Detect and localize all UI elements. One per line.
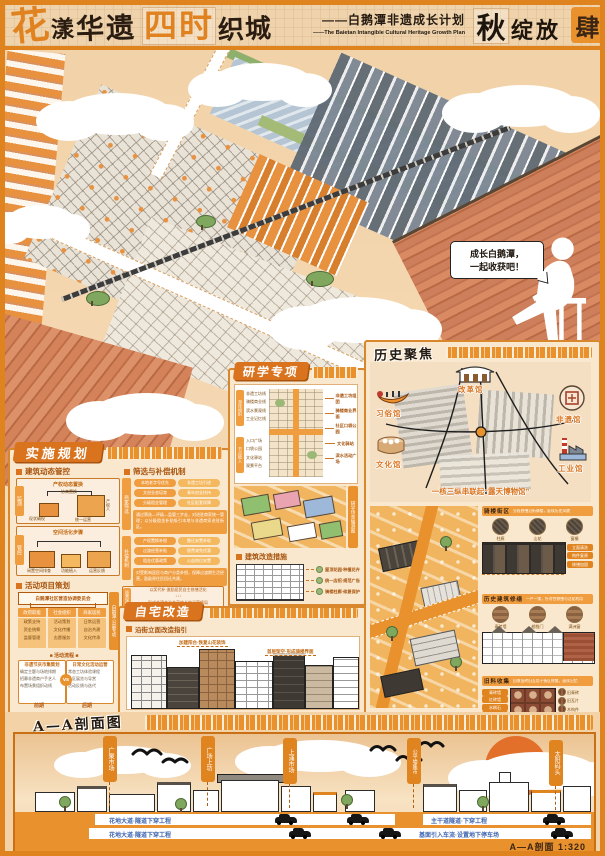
historic-building-subpanel: 历史建筑修缮 一户一策，针对性修缮与活化利用 青砖墙 趟栊门 满洲窗 (482, 594, 593, 674)
axon-block (273, 490, 301, 510)
axon-block (287, 522, 317, 543)
filter-groupB-note: 对受影响居民与商户分类补偿，保障过渡期生活经营，鼓励原住民回迁共建。 (133, 568, 227, 586)
activity-flow-divider: ■ 活动流程 ■ (18, 652, 110, 659)
facade-strip: 加建阳台·恢复山花装饰 首层架空·形成骑楼界面 (126, 636, 360, 710)
route-group1-tab: 游径组织 (236, 390, 244, 426)
retrofit-heading: 建筑改造措施 (236, 552, 287, 562)
place-banner: 太阳码头 (549, 740, 563, 786)
street-axon-illustration (370, 506, 478, 708)
diagram1-bar-a (39, 503, 59, 517)
plan-road-h (269, 429, 323, 435)
title-char-yang: 漾 (50, 17, 74, 41)
museum-label-reform: 改革馆 (458, 384, 484, 395)
compare-left-items: 确定主题与场地排期 招募非遗商户手艺人 布置场景组织动线 (20, 668, 64, 690)
road-band-1a: 花地大道·隧道下穿工程 (95, 814, 395, 825)
diagram2-box-b (61, 554, 81, 568)
org-branch-items: 活动策划 文化传播 志愿服务 (48, 618, 76, 648)
road-label: 花地大道·隧道下穿工程 (109, 830, 171, 839)
deco-strip (208, 608, 358, 618)
diagram2-tab: 管控 (15, 535, 24, 565)
policy-pill: 公益岗位安置 (178, 557, 220, 565)
activity-heading: 活动项目策划 (16, 580, 70, 591)
historic-subhead: 历史建筑修缮 一户一策，针对性修缮与活化利用 (482, 594, 593, 604)
tree-icon (175, 798, 187, 810)
park-blob (306, 271, 334, 287)
facade-callout-1: 加建阳台·恢复山花装饰 (177, 640, 228, 647)
car-icon (347, 817, 369, 823)
diagram1-label-3: 产权人 (105, 499, 111, 511)
detail-photo: 旧青砖 (558, 688, 579, 696)
deco-strip (145, 715, 593, 730)
detail-photo: 满洲窗 (566, 606, 583, 630)
activity-heading-text: 活动项目策划 (25, 580, 70, 591)
compare-right-items: 常态工坊体验课程 社区展览与导赏 活动反馈与迭代 (68, 668, 112, 690)
cloud (92, 393, 202, 435)
detail-photo: 旧瓦片 (558, 697, 579, 705)
poster-header: 花 漾 华遗 四时 织城 ——白鹅潭非遗成长计划 ——The Baietan I… (5, 5, 600, 50)
place-banner: 广聚市场 (103, 736, 117, 782)
retrofit-label: 统一店招·规范广告 (306, 575, 360, 586)
compare-right-box: 日常文化活动运营 常态工坊体验课程 社区展览与导赏 活动反馈与迭代 (66, 660, 114, 704)
diagram1-label-4: 统一运营 (75, 517, 91, 523)
plan-label: 骑楼商业界面 (325, 406, 357, 421)
building-control-heading: 建筑动态管控 (16, 466, 70, 477)
filter-groupB-tab: 补偿机制 (122, 536, 131, 580)
plan-label: 非遗工坊组团 (325, 391, 357, 406)
arcade-tags: 立面清洗构件复原修缮加固 (567, 542, 593, 569)
org-branch: 商家居民 日常运营 自治共建 文化传承 (78, 608, 106, 648)
building-control-heading-text: 建筑动态管控 (25, 466, 70, 477)
filter-groupB-pills: 产权置换补偿搬迁安置补助过渡经营补贴税费减免优惠租金优惠政策公益岗位安置 (133, 536, 223, 566)
policy-pill: 文创业态培育 (134, 489, 176, 497)
org-branch-head: 政府职能 (18, 608, 46, 617)
cloud (298, 297, 418, 343)
section-building (157, 782, 191, 812)
dimsum-basket-icon (376, 434, 406, 458)
plan-green (307, 451, 317, 459)
diagram2-caption: 空间活化步骤 (17, 529, 119, 536)
diagram2-box-c (87, 551, 111, 568)
org-branch-items: 日常运营 自治共建 文化传承 (78, 618, 106, 648)
masterplan-drawing (269, 389, 323, 477)
route-group2-items: 入口广场 口袋公园 文化驿站 观景平台 (246, 437, 262, 471)
cloud (6, 205, 76, 239)
policy-pill: 社区配套保障 (178, 499, 220, 507)
axon-block (303, 496, 336, 519)
plan-label: 滨水活动广场 (325, 451, 357, 466)
section-panel: A—A剖面图 广聚市场 广场上坊 (5, 712, 600, 853)
control-diagram-1: 监测 产权动态置换 现状确权 协商置换 产权人 统一运营 (16, 478, 120, 524)
filter-groupA-pills: 本地老字号优先非遗工坊引进文创业态培育青年创业扶持分级租金管理社区配套保障 (133, 478, 223, 508)
park-blob (196, 215, 216, 228)
section-building (109, 794, 155, 812)
car-icon (551, 831, 573, 837)
car-icon (379, 831, 401, 837)
retrofit-label-list: 屋顶花园·种植花卉统一店招·规范广告骑楼柱廊·修复保护 (306, 564, 360, 597)
tree-icon (341, 794, 353, 806)
tree-icon (440, 536, 452, 548)
facade (305, 665, 333, 709)
section-building (221, 780, 279, 812)
title-zhicheng: 织城 (218, 16, 273, 44)
material-detail-photos: 旧青砖 旧瓦片 木构件 (558, 688, 579, 714)
gable (521, 626, 537, 633)
cloud (263, 740, 378, 772)
museum-label-culture: 文化馆 (376, 459, 402, 470)
birds-icon (127, 742, 197, 768)
route-group1-items: 非遗工坊线 骑楼商业线 滨水景观线 工业记忆线 (246, 390, 266, 424)
place-banner: 公平墟集市 (407, 738, 421, 784)
diagram2-bracket (37, 541, 101, 547)
filter-groupA-note: 通过筛选—评级—监管三步走，对进驻商家统一管理；以分级租金补贴吸引本地与非遗商家… (133, 510, 227, 534)
route-group2-tab: 节点植入 (236, 437, 244, 473)
measure-tag: 构件复原 (567, 552, 593, 559)
arcade-subhead: 骑楼街区 分段修缮沿街骑楼，延续历史风貌 (482, 506, 593, 516)
compare-foot-right: 后期 (82, 702, 92, 709)
section-building (77, 786, 107, 812)
subtitle-en: ——The Baietan Intangible Cultural Herita… (305, 30, 465, 36)
axon-block (241, 494, 272, 517)
map-caption: 一核三纵串联起“露天博物馆” (370, 486, 591, 497)
compare-foot-left: 前期 (34, 702, 44, 709)
implementation-title-ribbon: 实施规划 (13, 442, 104, 462)
policy-pill: 搬迁安置补助 (178, 537, 220, 545)
diagram2-box-a (29, 551, 55, 568)
facade (131, 655, 167, 709)
road-band-1b: 主干道隧道·下穿工程 (423, 814, 591, 825)
policy-pill: 本地老字号优先 (134, 479, 176, 487)
facade (167, 667, 199, 709)
control-diagram-2: 管控 空间活化步骤 闲置空间排查 功能植入 运营反馈 (16, 526, 120, 576)
compare-left-box: 非遗节庆市集策划 确定主题与场地排期 招募非遗商户手艺人 布置场景组织动线 (18, 660, 66, 704)
filter-groupA-tab: 商家筛选 (122, 478, 131, 530)
facade-callout-2: 首层架空·形成骑楼界面 (265, 649, 316, 656)
season-char: 秋 (476, 5, 505, 47)
section-building (313, 792, 337, 812)
speech-line-1: 成长白鹅潭， (470, 247, 524, 260)
policy-pill: 税费减免优惠 (178, 547, 220, 555)
measure-tag: 修缮加固 (567, 561, 593, 568)
house-retrofit-panel: 自宅改造 沿街立面改造指引 加建阳台·恢复山花装饰 首层架空·形成骑楼界面 (118, 606, 368, 716)
tree-icon (477, 796, 489, 808)
filter-heading: 筛选与补偿机制 (124, 466, 186, 477)
material-note: 回收旧砖旧瓦用于街区修复，延续记忆 (513, 679, 578, 684)
diagram1-tab: 监测 (15, 486, 24, 516)
poster: 花 漾 华遗 四时 织城 ——白鹅潭非遗成长计划 ——The Baietan I… (0, 0, 605, 856)
arcade-footnote (482, 574, 564, 575)
car-icon (275, 817, 297, 823)
speech-line-2: 一起收获吧！ (470, 260, 524, 273)
diagram1-label-2: 协商置换 (61, 489, 77, 495)
title-sishi-box: 四时 (142, 7, 216, 45)
museum-label-industry: 工业馆 (558, 463, 584, 474)
org-branch: 政府职能 政策支持 资金统筹 监督管理 (18, 608, 46, 648)
diagram1-bar-b (77, 495, 105, 517)
policy-pill: 分级租金管理 (134, 499, 176, 507)
history-title: 历史聚焦 (374, 343, 435, 364)
season-box: 秋 (473, 8, 509, 44)
policy-pill: 租金优惠政策 (134, 557, 176, 565)
title-huayi: 华遗 (76, 13, 137, 43)
gable (547, 626, 563, 633)
car-icon (543, 817, 565, 823)
house-heading-text: 沿街立面改造指引 (135, 624, 187, 634)
section-building (193, 790, 219, 812)
history-panel: 历史聚焦 改革馆 (364, 340, 601, 716)
section-building (423, 784, 457, 812)
arcade-elevation (482, 542, 566, 574)
diagram1-label-1: 现状确权 (29, 516, 45, 522)
heritage-seal-icon (558, 384, 586, 412)
org-branch: 社会组织 活动策划 文化传播 志愿服务 (48, 608, 76, 648)
tree-icon (386, 626, 398, 638)
axon-block (319, 520, 343, 540)
study-title: 研学专项 (242, 363, 300, 380)
deco-strip (312, 367, 358, 378)
axon-scene-tab: 研学场景轴测图 (348, 486, 358, 548)
retrofit-label: 骑楼柱廊·修复保护 (306, 586, 360, 597)
section-building (281, 786, 311, 812)
org-branch-head: 商家居民 (78, 608, 106, 617)
museum-label-heritage: 非遗馆 (556, 414, 582, 425)
measure-tag: 立面清洗 (567, 544, 593, 551)
study-title-ribbon: 研学专项 (233, 362, 310, 380)
subtitle-cn: ——白鹅潭非遗成长计划 (305, 11, 465, 28)
org-branch-head: 社会组织 (48, 608, 76, 617)
place-banner: 上涌市场 (283, 738, 297, 784)
detail-photo: 窗楣 (566, 518, 583, 542)
road-label: 基面引入车流·设置地下停车场 (419, 830, 499, 839)
park-blob (86, 291, 110, 306)
section-building (563, 786, 591, 812)
arcade-subpanel: 骑楼街区 分段修缮沿街骑楼，延续历史风貌 柱廊 山花 窗楣 立面清洗构件复原修缮… (482, 506, 593, 592)
section-scale: A—A剖面 1:320 (509, 840, 586, 853)
material-tag: 红砖墙 (482, 696, 508, 703)
house-heading: 沿街立面改造指引 (126, 624, 187, 634)
diagram2-label-3: 运营反馈 (89, 568, 105, 574)
sheet-seal: 肆 (571, 7, 604, 43)
historic-note: 一户一策，针对性修缮与活化利用 (526, 597, 583, 602)
museum-map: 改革馆 习俗馆 文化馆 非遗馆 (370, 362, 591, 502)
diagram1-caption: 产权动态置换 (17, 481, 119, 488)
arcade-note: 分段修缮沿街骑楼，延续历史风貌 (513, 509, 570, 514)
material-tag: 水刷石 (482, 704, 508, 711)
section-building (531, 790, 561, 812)
implementation-title: 实施规划 (25, 443, 92, 462)
material-tag: 青砖墙 (482, 689, 508, 696)
section-scene: 广聚市场 广场上坊 上涌市场 公平墟集市 太阳码头 (13, 732, 596, 854)
plan-label-list: 非遗工坊组团骑楼商业界面社区口袋公园文化驿站滨水活动广场 (325, 391, 357, 466)
section-building (489, 782, 529, 812)
filter-heading-text: 筛选与补偿机制 (133, 466, 186, 477)
policy-pill: 青年创业扶持 (178, 489, 220, 497)
facade (333, 657, 359, 709)
house-title: 自宅改造 (134, 603, 192, 620)
arcade-detail-photos: 柱廊 山花 窗楣 (482, 518, 593, 542)
policy-pill: 非遗工坊引进 (178, 479, 220, 487)
plan-label: 文化驿站 (325, 436, 357, 451)
dragon-boat-icon (376, 386, 410, 406)
house-title-ribbon: 自宅改造 (123, 602, 204, 620)
axon-illustration (234, 486, 346, 548)
study-tour-panel: 研学专项 游径组织 非遗工坊线 骑楼商业线 滨水景观线 工业记忆线 节点植入 入… (228, 368, 366, 606)
cloud (62, 93, 172, 135)
detail-photo: 柱廊 (492, 518, 509, 542)
car-icon (289, 831, 311, 837)
diagram2-label-2: 功能植入 (61, 568, 77, 574)
title-sishi: 四时 (144, 9, 214, 42)
org-branch-items: 政策支持 资金统筹 监督管理 (18, 618, 46, 648)
retrofit-label: 屋顶花园·种植花卉 (306, 564, 360, 575)
tree-icon (59, 796, 71, 808)
compare-vs-badge: vs (60, 674, 72, 686)
policy-pill: 产权置换补偿 (134, 537, 176, 545)
facade (199, 649, 235, 709)
brick-bay (563, 633, 594, 661)
facade (235, 661, 273, 709)
cloud (212, 63, 312, 101)
deco-strip (446, 347, 592, 358)
detail-photo: 山花 (529, 518, 546, 542)
material-heading: 旧料收集 (484, 677, 510, 685)
axon-block (251, 518, 284, 541)
arcade-heading: 骑楼街区 (484, 507, 510, 515)
season-suffix: 绽放 (511, 13, 561, 45)
historic-elevation (482, 632, 595, 664)
road-label: 花地大道·隧道下穿工程 (109, 816, 171, 825)
historic-heading: 历史建筑修缮 (484, 595, 523, 603)
retrofit-elevation (236, 564, 304, 601)
seal-char: 肆 (576, 8, 600, 43)
deco-strip (106, 447, 222, 459)
facade (273, 653, 305, 709)
speech-bubble: 成长白鹅潭， 一起收获吧！ (450, 241, 544, 279)
masterplan-area: 游径组织 非遗工坊线 骑楼商业线 滨水景观线 工业记忆线 节点植入 入口广场 口… (234, 384, 358, 484)
plan-green (275, 399, 285, 407)
plan-label: 社区口袋公园 (325, 421, 357, 436)
place-banner: 广场上坊 (201, 736, 215, 782)
retrofit-heading-text: 建筑改造措施 (245, 552, 287, 562)
factory-icon (558, 436, 588, 462)
material-subhead: 旧料收集 回收旧砖旧瓦用于街区修复，延续记忆 (482, 676, 593, 686)
org-branches: 政府职能 政策支持 资金统筹 监督管理 社会组织 活动策划 文化传播 志愿服务 … (18, 608, 108, 648)
gable (491, 626, 507, 633)
policy-pill: 过渡经营补贴 (134, 547, 176, 555)
reform-hall-icon (452, 362, 498, 384)
cloud (468, 85, 578, 127)
diagram2-label-1: 闲置空间排查 (27, 568, 51, 574)
material-subpanel: 旧料收集 回收旧砖旧瓦用于街区修复，延续记忆 青砖墙红砖墙水刷石木门窗 旧青砖 … (482, 676, 593, 708)
road-band-2: 花地大道·隧道下穿工程 基面引入车流·设置地下停车场 (89, 828, 591, 839)
title-char-hua: 花 (9, 5, 51, 47)
museum-label-custom: 习俗馆 (376, 408, 402, 419)
road-label: 主干道隧道·下穿工程 (431, 816, 487, 825)
